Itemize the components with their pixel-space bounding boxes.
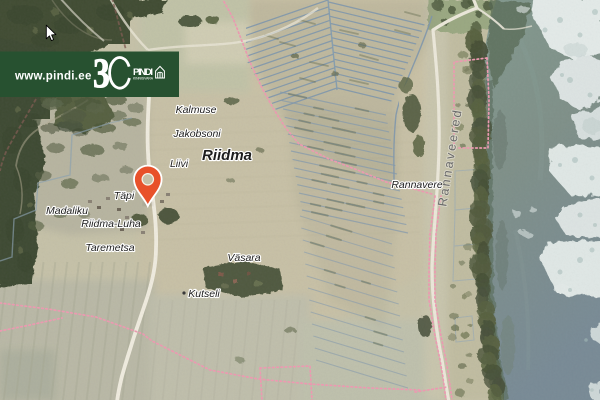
svg-text:Täpi: Täpi — [114, 190, 135, 202]
svg-text:KINNISVARA: KINNISVARA — [133, 77, 154, 81]
svg-text:Väsara: Väsara — [227, 252, 260, 264]
svg-text:Kalmuse: Kalmuse — [176, 104, 217, 116]
svg-text:Jakobsoni: Jakobsoni — [172, 128, 221, 140]
svg-text:Madaliku: Madaliku — [46, 205, 88, 217]
svg-text:Kutseli: Kutseli — [188, 288, 220, 300]
svg-text:Riidma: Riidma — [202, 147, 252, 164]
svg-text:Taremetsa: Taremetsa — [85, 242, 134, 254]
svg-text:3: 3 — [93, 51, 110, 97]
svg-text:Liivi: Liivi — [170, 158, 189, 170]
svg-text:Riidma-Luha: Riidma-Luha — [81, 218, 141, 230]
svg-text:Rannavere: Rannavere — [391, 179, 443, 191]
svg-text:www.pindi.ee: www.pindi.ee — [14, 71, 92, 83]
